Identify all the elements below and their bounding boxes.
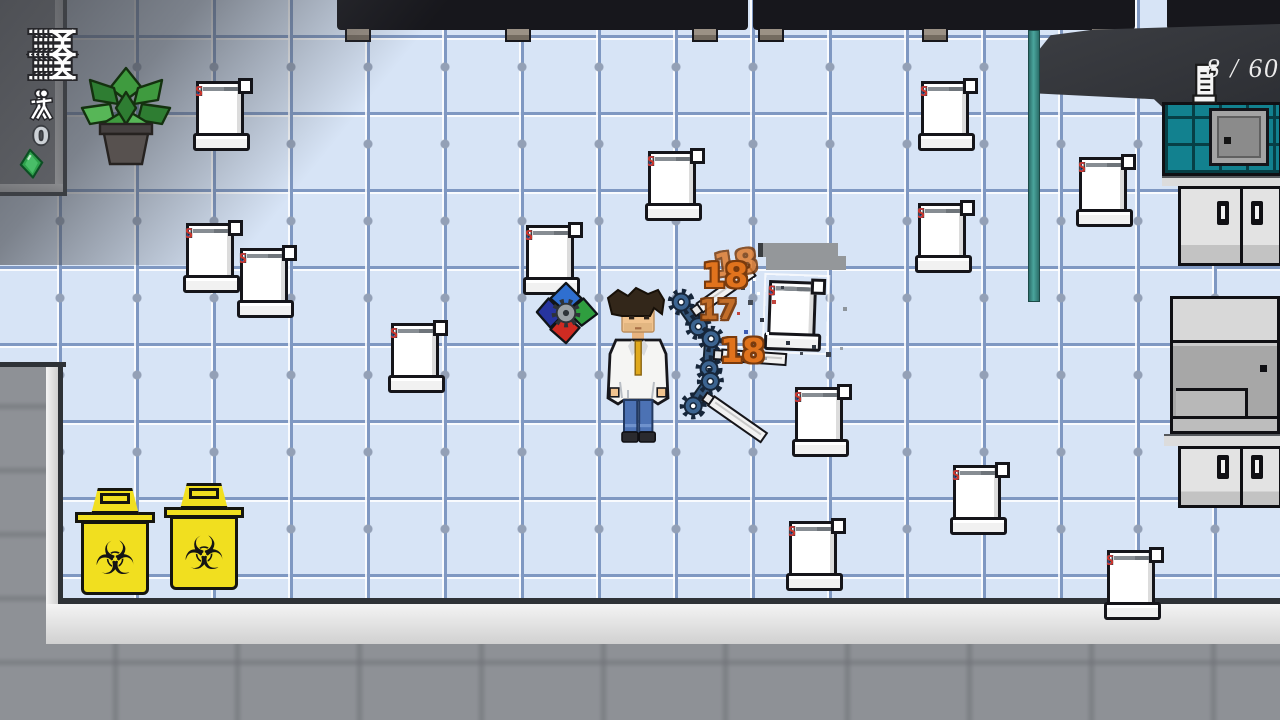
scroll-base xyxy=(193,133,250,151)
cns-scroll-enemy: CNS xyxy=(786,516,848,592)
cns-scroll-enemy: CNS xyxy=(237,243,299,319)
scroll-fold xyxy=(690,148,705,164)
scroll-fold xyxy=(1149,547,1164,563)
left-wall-lower-edge xyxy=(58,367,63,602)
gem-count: 0 xyxy=(33,124,49,150)
cns-scroll-enemy: CNS xyxy=(1104,545,1166,621)
enemy-health-bar xyxy=(766,256,846,270)
counter-strip-upper xyxy=(1162,176,1280,186)
damage-number: 18 xyxy=(702,256,747,296)
hit-particle xyxy=(781,286,784,289)
scroll-fold xyxy=(433,320,448,336)
scroll-base xyxy=(918,133,975,151)
scroll-base xyxy=(183,275,240,293)
hit-particle xyxy=(760,318,764,322)
sink-icon xyxy=(1209,108,1269,166)
bench-leg xyxy=(758,27,784,42)
scroll-base xyxy=(950,517,1007,535)
cns-scroll-enemy: CNS xyxy=(183,218,245,294)
scroll-base xyxy=(786,573,843,591)
cns-scroll-enemy: CNS xyxy=(193,76,255,152)
scroll-base xyxy=(645,203,702,221)
hit-particle xyxy=(757,292,760,295)
hit-particle xyxy=(826,352,831,357)
hit-particle xyxy=(843,307,847,311)
scroll-fold xyxy=(831,518,846,534)
hit-particle xyxy=(840,347,843,350)
scroll-counter-text: 8 / 60 xyxy=(1206,53,1280,83)
analyzer-machine xyxy=(1170,296,1280,434)
scroll-fold xyxy=(960,200,975,216)
multicolor-sample-pickup xyxy=(533,281,599,347)
scroll-fold xyxy=(837,384,852,400)
hit-particle xyxy=(737,312,740,315)
game-viewport[interactable]: ☣ ☣ CNS CNS CNS xyxy=(0,0,1280,720)
scroll-fold xyxy=(238,78,253,94)
scroll-fold xyxy=(963,78,978,94)
cns-scroll-enemy: CNS xyxy=(1076,152,1138,228)
outside-corridor-bottom xyxy=(0,644,1280,720)
cabinet-handle-icon xyxy=(1251,201,1263,225)
cabinet-upper xyxy=(1178,186,1280,266)
cabinet-lower xyxy=(1178,446,1280,508)
hit-particle xyxy=(772,300,776,304)
scroll-fold xyxy=(995,462,1010,478)
hit-particle xyxy=(748,300,753,305)
bench-leg xyxy=(692,27,718,42)
sink-counter xyxy=(1162,102,1280,176)
hit-particle xyxy=(800,352,803,355)
cns-scroll-enemy: CNS xyxy=(388,318,450,394)
biohazard-icon: ☣ xyxy=(94,535,135,581)
cabinet-handle-icon xyxy=(1217,455,1229,479)
hit-particle xyxy=(764,357,767,360)
biohazard-bin: ☣ xyxy=(163,479,247,593)
scroll-fold xyxy=(228,220,243,236)
scroll-base xyxy=(388,375,445,393)
bottom-wall-face xyxy=(46,604,1280,646)
damage-number: 17 xyxy=(699,293,736,326)
scroll-base xyxy=(915,255,972,273)
cabinet-handle-icon xyxy=(1217,201,1229,225)
teal-divider xyxy=(1028,30,1040,302)
cns-scroll-enemy: CNS xyxy=(645,146,707,222)
enemy-health-bar xyxy=(758,243,838,257)
bench-leg xyxy=(922,27,948,42)
biohazard-icon: ☣ xyxy=(183,530,224,576)
scroll-base xyxy=(237,300,294,318)
cns-scroll-enemy: CNS xyxy=(792,382,854,458)
lab-bench xyxy=(753,0,1135,30)
biohazard-bin: ☣ xyxy=(74,484,158,598)
cns-scroll-enemy: CNS xyxy=(918,76,980,152)
scroll-base xyxy=(1076,209,1133,227)
scroll-base xyxy=(1104,602,1161,620)
hit-particle xyxy=(786,341,790,345)
hud-scroll-counter: 8 / 60 xyxy=(1192,46,1280,96)
left-wall-lower-face xyxy=(46,367,58,617)
damage-number: 18 xyxy=(720,331,764,370)
cns-scroll-enemy: CNS xyxy=(950,460,1012,536)
bench-leg xyxy=(505,27,531,42)
counter-strip-lower xyxy=(1164,434,1280,446)
enemy-health-remaining xyxy=(758,243,763,257)
scroll-fold xyxy=(282,245,297,261)
scroll-fold xyxy=(811,279,827,296)
cns-scroll-enemy: CNS xyxy=(915,198,977,274)
scroll-base xyxy=(792,439,849,457)
scroll-fold xyxy=(568,222,583,238)
potted-plant xyxy=(70,64,182,168)
cabinet-handle-icon xyxy=(1251,455,1263,479)
hud-gem-row: 0 xyxy=(18,130,49,156)
scroll-fold xyxy=(1121,154,1136,170)
hit-particle xyxy=(812,345,816,349)
hit-particle xyxy=(766,332,769,335)
